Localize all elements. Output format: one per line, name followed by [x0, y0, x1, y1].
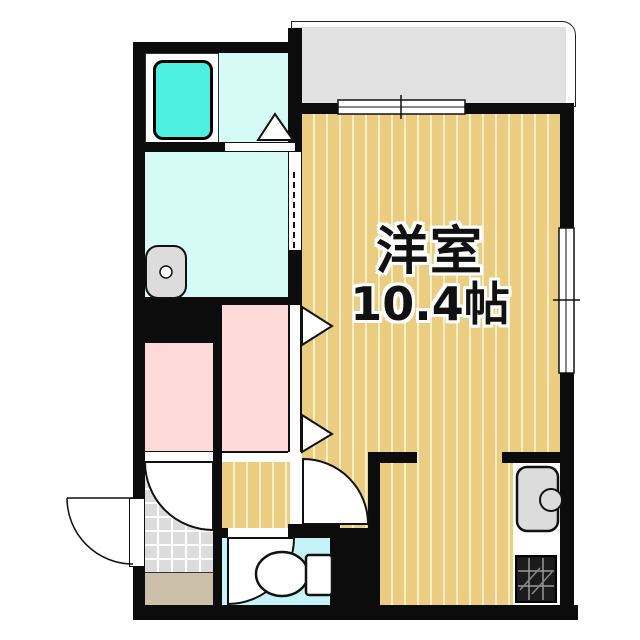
- closet-right: [222, 305, 288, 453]
- closet-left-door-strip: [145, 451, 213, 463]
- floor-plan: 洋室 10.4帖: [0, 0, 640, 640]
- wall-bath-divider: [145, 142, 225, 152]
- balcony: [291, 21, 576, 107]
- washroom-floor: [145, 152, 288, 297]
- wall-top-left-column: [133, 42, 302, 53]
- wall-toilet-top-right: [288, 524, 340, 538]
- washroom-slider-gap: [288, 152, 302, 250]
- wall-main-top: [288, 103, 574, 114]
- wall-washroom-bottom: [145, 297, 222, 343]
- bathtub: [153, 60, 213, 140]
- washroom-slider-dashes: [293, 172, 295, 248]
- bathroom-door-gap: [225, 142, 295, 152]
- room-size-label: 10.4帖: [308, 280, 552, 330]
- closet-left: [145, 343, 213, 453]
- entrance-door-frame: [129, 498, 145, 567]
- entrance-step: [145, 572, 213, 606]
- wall-l-vertical: [368, 452, 380, 605]
- wall-left-upper: [133, 42, 145, 498]
- entrance-tile-floor: [145, 478, 213, 572]
- hallway-floor: [222, 462, 290, 528]
- balcony-floor: [294, 27, 566, 104]
- wall-above-closet-right: [222, 297, 302, 305]
- wall-closet-divider: [213, 305, 222, 605]
- wall-kitchen-stub: [502, 452, 572, 463]
- wall-center-top: [288, 28, 302, 152]
- room-name-label: 洋室: [308, 224, 552, 280]
- wall-toilet-top-left: [222, 528, 228, 538]
- closet-front-track: [288, 305, 302, 452]
- wall-right: [560, 103, 574, 605]
- wall-toilet-right-block: [330, 528, 368, 605]
- room-label-block: 洋室 10.4帖: [308, 224, 552, 330]
- kitchen-floor: [513, 463, 560, 605]
- toilet-floor: [222, 538, 330, 605]
- wall-bottom: [133, 605, 578, 620]
- entrance-exterior-door-arc: [67, 498, 133, 564]
